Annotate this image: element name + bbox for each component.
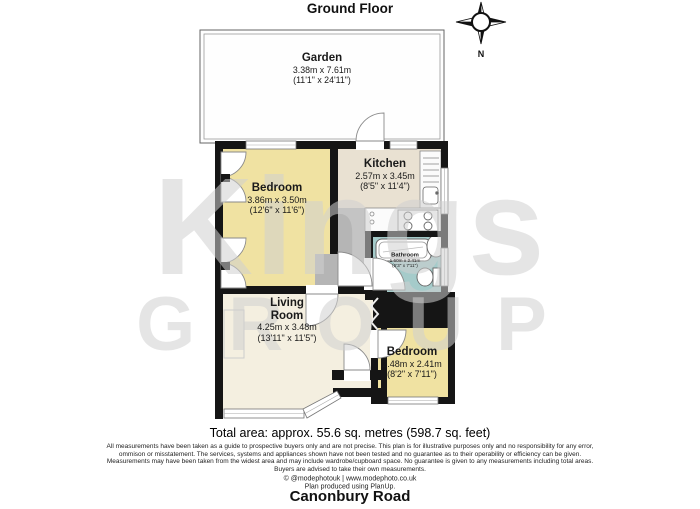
bedroom-2-name: Bedroom [347, 346, 477, 359]
garden-imperial: (11'1" x 24'11") [252, 75, 392, 85]
bedroom-2-imperial: (8'2" x 7'11") [347, 369, 477, 380]
garden-name: Garden [252, 52, 392, 65]
garden-label: Garden 3.38m x 7.61m (11'1" x 24'11") [252, 52, 392, 85]
street-address: Canonbury Road [0, 488, 700, 505]
total-area-text: Total area: approx. 55.6 sq. metres (598… [0, 426, 700, 440]
kitchen-label: Kitchen 2.57m x 3.45m (8'5" x 11'4") [325, 158, 445, 192]
bathroom-imperial: (5'3" x 7'11") [371, 263, 439, 268]
kitchen-metric: 2.57m x 3.45m [325, 171, 445, 182]
bedroom-1-metric: 3.86m x 3.50m [207, 195, 347, 206]
hallway-notch [315, 254, 338, 286]
compass-icon: N [450, 0, 512, 60]
kitchen-imperial: (8'5" x 11'4") [325, 181, 445, 192]
living-room-name: Living Room [222, 297, 352, 322]
living-room-label: Living Room 4.25m x 3.48m (13'11" x 11'5… [222, 297, 352, 343]
garden-area [200, 30, 444, 143]
bedroom-1-imperial: (12'6" x 11'6") [207, 205, 347, 216]
credits-line-1: © @modephotouk | www.modephoto.co.uk [0, 475, 700, 483]
disclaimer-line-4: Buyers are advised to take their own mea… [0, 466, 700, 474]
garden-metric: 3.38m x 7.61m [252, 65, 392, 75]
disclaimer-line-2: ommison or misstatement. The services, s… [0, 451, 700, 459]
bathroom-label: Bathroom 1.60m x 2.41m (5'3" x 7'11") [350, 252, 460, 278]
disclaimer-line-3: Measurements may have been taken from th… [0, 458, 700, 466]
bedroom-2-label: Bedroom 2.48m x 2.41m (8'2" x 7'11") [347, 346, 477, 380]
disclaimer-line-1: All measurements have been taken as a gu… [0, 443, 700, 451]
kitchen-name: Kitchen [325, 158, 445, 171]
bedroom-2-metric: 2.48m x 2.41m [347, 359, 477, 370]
compass-north-label: N [478, 49, 485, 59]
living-room-metric: 4.25m x 3.48m [222, 322, 352, 333]
floorplan-page: Ground Floor N [0, 0, 700, 509]
living-room-imperial: (13'11" x 11'5") [222, 333, 352, 344]
stove-icon [398, 210, 438, 231]
